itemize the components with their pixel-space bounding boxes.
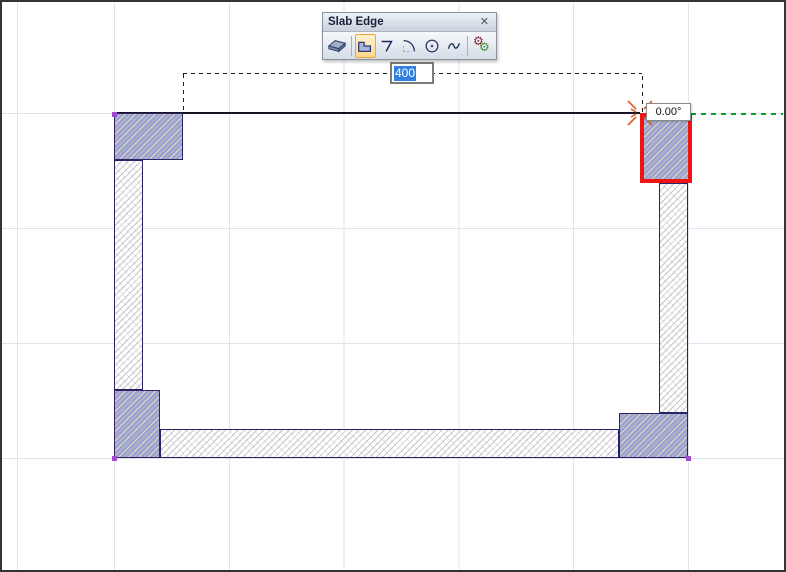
drawing-canvas[interactable]: 0.00° 400 Slab Edge ✕ bbox=[0, 0, 786, 572]
toolbar-title-bar[interactable]: Slab Edge ✕ bbox=[323, 13, 496, 32]
settings-button[interactable]: ⚙⚙ bbox=[471, 34, 493, 58]
pick-circle-icon bbox=[423, 37, 441, 55]
slab-edge-toolbar: Slab Edge ✕ bbox=[322, 12, 497, 60]
pick-polyline-icon bbox=[378, 37, 396, 55]
wall-left[interactable] bbox=[114, 160, 143, 390]
alignment-guide-line bbox=[691, 113, 783, 115]
gears-icon: ⚙⚙ bbox=[472, 36, 492, 56]
slab-icon bbox=[327, 37, 347, 55]
angle-tooltip-text: 0.00° bbox=[656, 106, 682, 118]
pick-circle-button[interactable] bbox=[421, 34, 442, 58]
pick-arc-icon bbox=[400, 37, 418, 55]
dimension-input-value: 400 bbox=[394, 66, 416, 81]
wall-right[interactable] bbox=[659, 183, 688, 413]
slab-button[interactable] bbox=[326, 34, 348, 58]
angle-tooltip: 0.00° bbox=[646, 103, 691, 121]
dimension-input[interactable]: 400 bbox=[390, 62, 434, 84]
pick-curve-button[interactable] bbox=[443, 34, 464, 58]
pick-arc-button[interactable] bbox=[399, 34, 420, 58]
toolbar-separator bbox=[467, 36, 468, 56]
column-bottom-left[interactable] bbox=[114, 390, 160, 458]
pick-polygon-icon bbox=[356, 37, 374, 55]
pick-polyline-button[interactable] bbox=[377, 34, 398, 58]
column-top-left[interactable] bbox=[114, 113, 183, 160]
vertex-handle-bottom-right[interactable] bbox=[686, 456, 691, 461]
slab-edge-line bbox=[114, 112, 640, 114]
toolbar-title: Slab Edge bbox=[328, 16, 478, 28]
dimension-dashed-line-left bbox=[183, 74, 184, 113]
pick-curve-icon bbox=[445, 37, 463, 55]
column-bottom-right[interactable] bbox=[619, 413, 688, 458]
close-icon[interactable]: ✕ bbox=[478, 17, 491, 28]
wall-bottom[interactable] bbox=[160, 429, 619, 458]
vertex-handle-bottom-left[interactable] bbox=[112, 456, 117, 461]
vertex-handle-top-left[interactable] bbox=[112, 112, 117, 117]
toolbar-separator bbox=[351, 36, 352, 56]
pick-polygon-button[interactable] bbox=[355, 34, 376, 58]
toolbar-button-row: ⚙⚙ bbox=[323, 32, 496, 59]
